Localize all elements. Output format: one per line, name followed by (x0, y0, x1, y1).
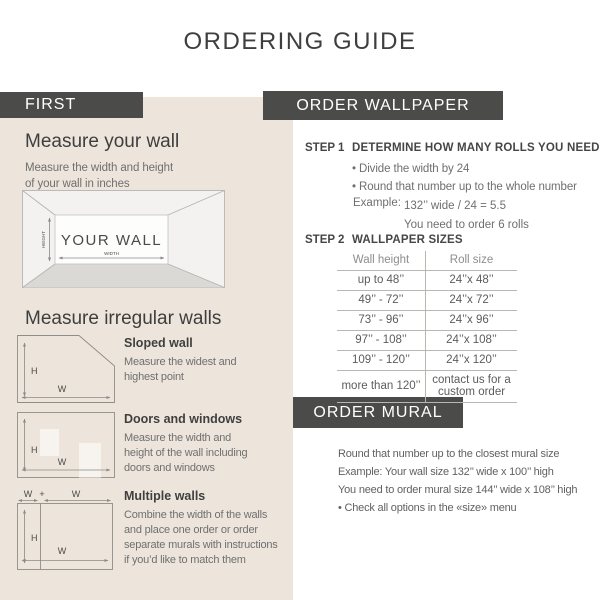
item-line: if you’d like to match them (124, 553, 278, 568)
multiple-walls-diagram: W + W H W (17, 488, 115, 571)
w-label: W (58, 546, 67, 556)
w1-label: W (24, 489, 33, 499)
mural-line: Round that number up to the closest mura… (338, 445, 577, 463)
sloped-wall-text: Sloped wall Measure the widest and highe… (124, 336, 236, 385)
irregular-walls-heading: Measure irregular walls (25, 308, 221, 330)
page-title: ORDERING GUIDE (0, 28, 600, 56)
step2-title: WALLPAPER SIZES (352, 234, 463, 246)
wall-height-cell: 49’’ - 72’’ (337, 291, 426, 310)
wall-height-cell: 73’’ - 96’’ (337, 311, 426, 330)
table-header-row: Wall height Roll size (337, 251, 517, 271)
wall-height-cell: 109’’ - 120’’ (337, 351, 426, 370)
doors-windows-text: Doors and windows Measure the width and … (124, 412, 247, 476)
example-value: 132’’ wide / 24 = 5.5 You need to order … (404, 197, 529, 235)
h-label: H (31, 533, 38, 543)
door-shape (79, 443, 101, 478)
h-label: H (31, 445, 38, 455)
col-header-roll-size: Roll size (426, 251, 517, 270)
w2-label: W (72, 489, 81, 499)
example-line: You need to order 6 rolls (404, 216, 529, 235)
sloped-wall-diagram: H W (17, 335, 115, 403)
height-label: HEIGHT (41, 231, 46, 248)
wall-height-cell: more than 120’’ (337, 371, 426, 402)
item-line: Measure the widest and (124, 355, 236, 370)
roll-size-cell: contact us for a custom order (426, 371, 517, 402)
roll-size-cell: 24’’x 48’’ (426, 271, 517, 290)
your-wall-label: YOUR WALL (61, 232, 162, 249)
example-line: 132’’ wide / 24 = 5.5 (404, 197, 529, 216)
wallpaper-sizes-table: Wall height Roll size up to 48’’ 24’’x 4… (337, 251, 517, 403)
wall-height-cell: 97’’ - 108’’ (337, 331, 426, 350)
table-row: 97’’ - 108’’ 24’’x 108’’ (337, 331, 517, 351)
item-title: Doors and windows (124, 412, 247, 427)
item-line: doors and windows (124, 461, 247, 476)
roll-size-cell: 24’’x 72’’ (426, 291, 517, 310)
item-title: Sloped wall (124, 336, 236, 351)
order-wallpaper-header: ORDER WALLPAPER (263, 91, 503, 120)
multiple-walls-text: Multiple walls Combine the width of the … (124, 489, 278, 568)
item-line: Measure the width and (124, 431, 247, 446)
order-mural-text: Round that number up to the closest mura… (338, 445, 577, 517)
mural-line: • Check all options in the «size» menu (338, 499, 577, 517)
window-shape (40, 429, 59, 456)
item-line: Combine the width of the walls (124, 508, 278, 523)
item-title: Multiple walls (124, 489, 278, 504)
measure-wall-heading: Measure your wall (25, 131, 179, 153)
table-row: up to 48’’ 24’’x 48’’ (337, 271, 517, 291)
measure-wall-subtitle: Measure the width and height of your wal… (25, 160, 173, 192)
ordering-guide-page: ORDERING GUIDE FIRST ORDER WALLPAPER ORD… (0, 0, 600, 600)
bullet-line: • Round that number up to the whole numb… (352, 178, 577, 196)
roll-size-cell: 24’’x 96’’ (426, 311, 517, 330)
table-row: more than 120’’ contact us for a custom … (337, 371, 517, 403)
col-header-wall-height: Wall height (337, 251, 426, 270)
doors-windows-diagram: H W (17, 412, 115, 478)
step1-label: STEP 1 (305, 142, 344, 154)
wall-height-cell: up to 48’’ (337, 271, 426, 290)
h-label: H (31, 366, 38, 376)
item-line: height of the wall including (124, 446, 247, 461)
roll-size-cell: 24’’x 120’’ (426, 351, 517, 370)
w-label: W (58, 457, 67, 467)
item-line: highest point (124, 370, 236, 385)
example-label: Example: (353, 197, 401, 209)
step1-bullets: • Divide the width by 24 • Round that nu… (352, 160, 577, 196)
subtitle-line: Measure the width and height (25, 160, 173, 176)
w-label: W (58, 384, 67, 394)
step1-title: DETERMINE HOW MANY ROLLS YOU NEED (352, 142, 600, 154)
step2-label: STEP 2 (305, 234, 344, 246)
bullet-line: • Divide the width by 24 (352, 160, 577, 178)
roll-size-cell: 24’’x 108’’ (426, 331, 517, 350)
plus-label: + (39, 489, 44, 499)
mural-line: You need to order mural size 144’’ wide … (338, 481, 577, 499)
table-row: 49’’ - 72’’ 24’’x 72’’ (337, 291, 517, 311)
table-row: 73’’ - 96’’ 24’’x 96’’ (337, 311, 517, 331)
first-section-header: FIRST (0, 92, 143, 118)
table-row: 109’’ - 120’’ 24’’x 120’’ (337, 351, 517, 371)
item-line: separate murals with instructions (124, 538, 278, 553)
mural-line: Example: Your wall size 132’’ wide x 100… (338, 463, 577, 481)
width-label: WIDTH (104, 251, 119, 256)
item-line: and place one order or order (124, 523, 278, 538)
wall-diagram: YOUR WALL HEIGHT WIDTH (22, 190, 225, 288)
